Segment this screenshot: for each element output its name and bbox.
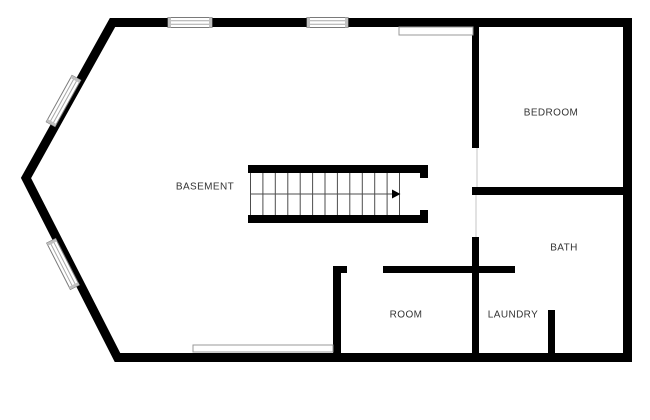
room-label-laundry: LAUNDRY	[488, 310, 538, 321]
bath-left-wall	[472, 237, 479, 353]
interior-walls	[248, 27, 632, 353]
bedroom-bottom-wall	[472, 187, 632, 195]
stair-bottom-wall	[248, 215, 428, 223]
room-label-bath: BATH	[550, 243, 578, 254]
room-left-wall	[333, 266, 341, 353]
stair-treads	[251, 173, 400, 215]
window-icon	[168, 18, 212, 28]
room-laundry-top-wall	[383, 266, 515, 273]
bedroom-left-wall	[472, 27, 479, 148]
stair-end-cap-top	[420, 173, 428, 178]
laundry-bath-divider-wall	[548, 310, 555, 353]
stair-end-cap-bottom	[420, 210, 428, 215]
room-label-basement: BASEMENT	[176, 182, 234, 193]
room-label-room: ROOM	[390, 310, 423, 321]
wall-opening-bottom	[193, 345, 333, 352]
basement-floor-plan: BASEMENT BEDROOM BATH LAUNDRY ROOM	[0, 0, 650, 420]
room-label-bedroom: BEDROOM	[524, 108, 578, 119]
floor-plan-drawing	[0, 0, 650, 420]
window-icon	[307, 18, 348, 28]
stair-top-wall	[248, 165, 428, 173]
wall-opening-top	[399, 27, 473, 35]
